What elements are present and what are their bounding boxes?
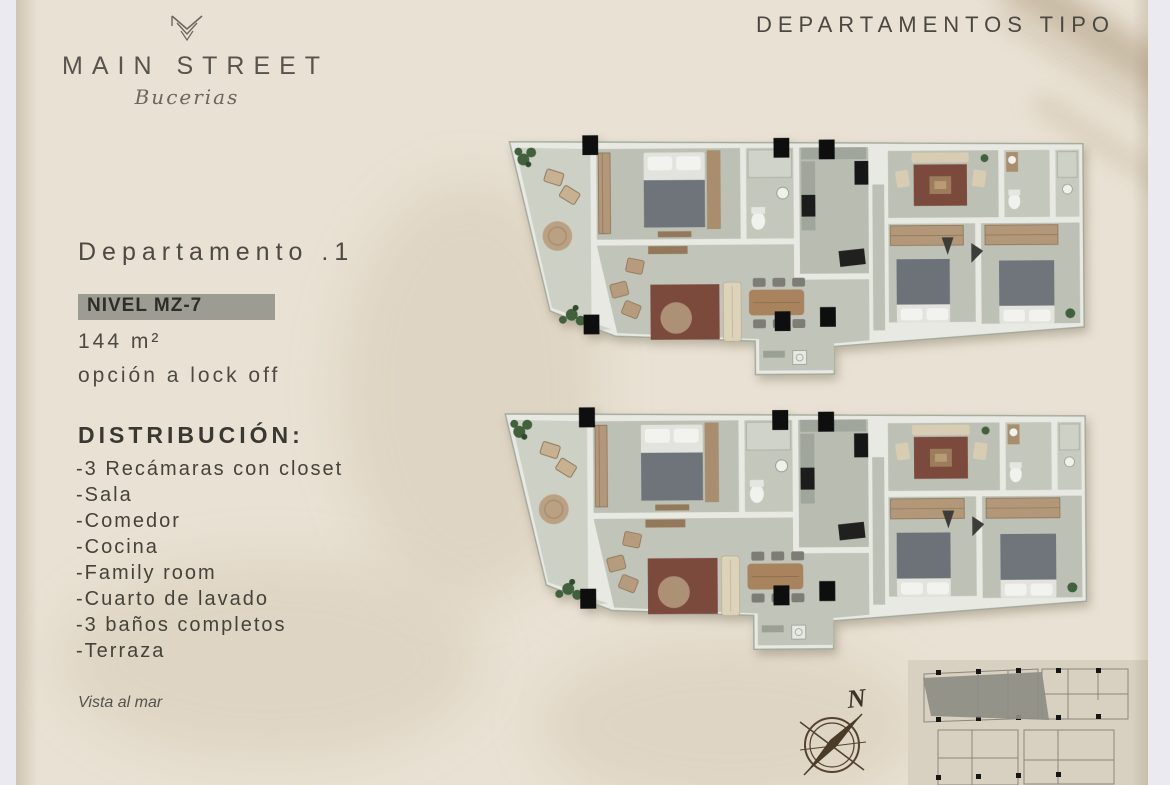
compass-rose-icon: N xyxy=(792,682,892,785)
floor-plan-lower xyxy=(493,396,1097,671)
distribution-item: -Cuarto de lavado xyxy=(76,586,456,612)
distribution-item: -Comedor xyxy=(76,508,456,534)
page-edge-right xyxy=(1148,0,1170,785)
distribution-item: -Family room xyxy=(76,560,456,586)
distribution-heading: DISTRIBUCIÓN: xyxy=(78,422,304,449)
page-edge-shadow xyxy=(16,0,38,785)
floor-plan-upper xyxy=(497,124,1095,396)
brand-logo: MAIN STREET Bucerias xyxy=(62,14,312,109)
site-key-plan xyxy=(908,660,1148,785)
brand-name: MAIN STREET xyxy=(62,52,312,81)
distribution-item: -3 Recámaras con closet xyxy=(76,456,456,482)
distribution-item: -Sala xyxy=(76,482,456,508)
brochure-slide: DEPARTAMENTOS TIPO MAIN STREET Bucerias … xyxy=(0,0,1170,785)
brand-subname: Bucerias xyxy=(62,85,312,109)
unit-area: 144 m² xyxy=(78,330,161,354)
compass-north-label: N xyxy=(845,683,869,714)
sea-view-note: Vista al mar xyxy=(78,694,162,712)
page-edge-shadow xyxy=(1132,0,1148,785)
lockoff-option: opción a lock off xyxy=(78,364,280,388)
page-edge-left xyxy=(0,0,16,785)
distribution-item: -3 baños completos xyxy=(76,612,456,638)
distribution-item: -Terraza xyxy=(76,638,456,664)
unit-location-highlight xyxy=(923,672,1049,720)
page-title: DEPARTAMENTOS TIPO xyxy=(756,12,1116,38)
distribution-item: -Cocina xyxy=(76,534,456,560)
level-badge: NIVEL MZ-7 xyxy=(78,294,275,320)
distribution-list: -3 Recámaras con closet -Sala -Comedor -… xyxy=(76,456,456,664)
unit-title: Departamento .1 xyxy=(78,238,354,267)
logo-monogram-icon xyxy=(166,14,208,48)
